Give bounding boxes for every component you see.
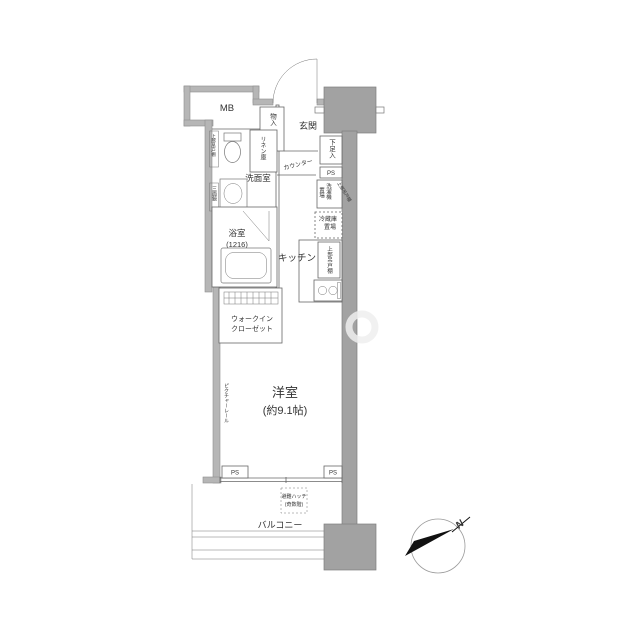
main-room-label: 洋室	[272, 385, 298, 400]
hatch-label-1: 避難ハッチ	[281, 493, 306, 500]
kitchen-label: キッチン	[278, 253, 316, 264]
compass: N	[405, 517, 470, 573]
wall-bottom-left	[203, 477, 221, 483]
picture-rail-label: ピクチャーレール	[223, 383, 229, 423]
stove	[314, 280, 342, 301]
wall-entry-right	[317, 99, 324, 105]
floor-plan-page: MB 物入 玄関 下足入 PS 洗濯機 置場 上部吊戸棚 冷蔵庫 置場 上部吊戸…	[0, 0, 640, 640]
toilet-bowl	[225, 142, 241, 163]
balcony: 避難ハッチ (奇数階) バルコニー	[192, 484, 324, 559]
entrance-door	[273, 59, 317, 103]
entrance-label: 玄関	[299, 120, 317, 131]
compass-needle	[405, 529, 454, 556]
wall-tie-right	[376, 107, 384, 113]
toilet-tank	[224, 133, 241, 141]
pillar-top-right	[324, 87, 376, 133]
fridge-label-2: 置場	[324, 223, 336, 231]
upper-cabinet-washroom-label: 上部吊戸棚	[211, 133, 217, 158]
ps-top-label: PS	[327, 171, 335, 177]
wall-tie-left	[315, 107, 324, 113]
wic-label-1: ウォークイン	[231, 315, 273, 323]
escape-hatch	[281, 488, 307, 513]
washroom-label: 洗面室	[245, 173, 271, 183]
bath-label: 浴室	[228, 228, 246, 238]
upper-cabinet-kitchen-label: 上部吊戸棚	[326, 245, 333, 275]
wall-mb-top	[184, 86, 259, 92]
washer-label-col1: 洗濯機	[325, 182, 332, 201]
wic-label-2: クローゼット	[231, 324, 273, 333]
bathroom: 浴室 (1216)	[212, 207, 277, 287]
balcony-label: バルコニー	[258, 520, 303, 530]
main-room-size-label: (約9.1帖)	[263, 403, 308, 417]
mb-label: MB	[220, 103, 234, 114]
door-swing-arc	[273, 59, 317, 103]
window-wall: PS PS	[220, 466, 342, 483]
mirror-label: 三面鏡	[211, 186, 217, 202]
walk-in-closet: ウォークイン クローゼット	[219, 288, 282, 343]
bathtub-outer	[221, 248, 271, 283]
ps-bottom-left-label: PS	[231, 471, 239, 477]
wall-entry-left	[253, 99, 273, 105]
pillar-bottom-right	[324, 524, 376, 570]
washroom: 上部吊戸棚 リネン庫 洗面室 三面鏡	[210, 130, 278, 211]
fridge-label-1: 冷蔵庫	[319, 215, 337, 223]
floor-plan-drawing: MB 物入 玄関 下足入 PS 洗濯機 置場 上部吊戸棚 冷蔵庫 置場 上部吊戸…	[0, 0, 640, 640]
ps-bottom-right-label: PS	[329, 471, 337, 477]
linen-label: リネン庫	[259, 136, 266, 161]
hatch-label-2: (奇数階)	[285, 501, 304, 508]
counter-label: カウンター	[283, 157, 314, 172]
washer-label-col2: 置場	[318, 187, 325, 200]
